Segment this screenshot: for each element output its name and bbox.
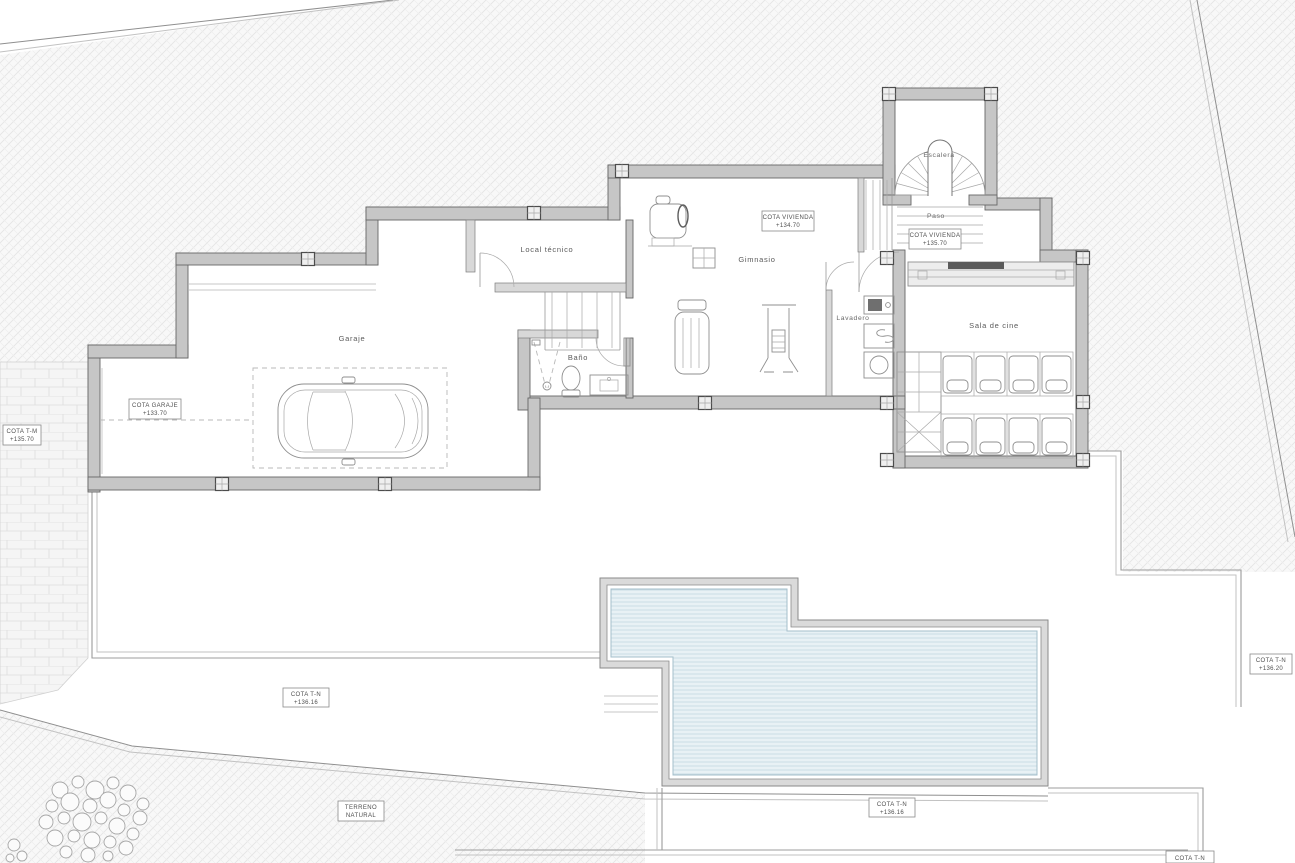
cota-value: +133.70 <box>143 411 167 417</box>
cota-tn-cut-bottom-right: COTA T-N <box>1166 851 1214 863</box>
pool-water <box>611 589 1037 775</box>
cota-label: COTA T-N <box>877 802 907 808</box>
cota-vivienda-paso: COTA VIVIENDA +135.70 <box>909 229 961 249</box>
cota-tm-left: COTA T-M +135.70 <box>3 425 41 445</box>
cota-label: COTA VIVIENDA <box>910 233 961 239</box>
cinema-seats <box>941 352 1073 458</box>
cota-tn-right: COTA T-N +136.20 <box>1250 654 1292 674</box>
cota-label: COTA T-N <box>1175 856 1205 862</box>
paving-brick-strip <box>0 362 88 704</box>
cota-garaje: COTA GARAJE +133.70 <box>129 399 181 419</box>
stair-arch-niche <box>928 140 952 196</box>
door-swings <box>480 252 899 366</box>
bathroom-fixtures <box>532 338 630 397</box>
cota-value: +135.70 <box>923 241 947 247</box>
cota-label: COTA VIVIENDA <box>763 215 814 221</box>
terreno-natural-label: TERRENO NATURAL <box>338 801 384 821</box>
room-label-garaje: Garaje <box>339 334 366 343</box>
room-label-lavadero: Lavadero <box>836 315 869 322</box>
floorplan-svg: Garaje Local técnico Baño Gimnasio Lavad… <box>0 0 1295 863</box>
cota-label: COTA T-N <box>1256 658 1286 664</box>
cota-vivienda-gym: COTA VIVIENDA +134.70 <box>762 211 814 231</box>
cota-value: +135.70 <box>10 437 34 443</box>
cota-label: COTA GARAJE <box>132 403 178 409</box>
room-label-gimnasio: Gimnasio <box>738 255 775 264</box>
room-label-bano: Baño <box>568 353 588 362</box>
interior-stair <box>545 292 620 350</box>
cota-label: COTA T-N <box>291 692 321 698</box>
room-label-escalera: Escalera <box>923 152 954 159</box>
cota-label: COTA T-M <box>7 429 38 435</box>
cota-value: +136.20 <box>1259 666 1283 672</box>
cota-tn-left: COTA T-N +136.16 <box>283 688 329 707</box>
terreno-line1: TERRENO <box>345 805 377 811</box>
cinema-screen <box>908 262 1074 286</box>
room-label-sala-de-cine: Sala de cine <box>969 321 1019 330</box>
pool <box>600 578 1048 786</box>
car-top-view <box>278 377 428 465</box>
cota-tn-bottom: COTA T-N +136.16 <box>869 798 915 817</box>
cota-value: +134.70 <box>776 223 800 229</box>
stair-tower-fan <box>895 140 985 196</box>
terreno-line2: NATURAL <box>346 813 377 819</box>
laundry-appliances <box>864 296 894 378</box>
room-label-paso: Paso <box>927 213 945 220</box>
cota-value: +136.16 <box>880 810 904 816</box>
floorplan-stage: Garaje Local técnico Baño Gimnasio Lavad… <box>0 0 1295 863</box>
room-label-local-tecnico: Local técnico <box>521 245 574 254</box>
cota-value: +136.16 <box>294 700 318 706</box>
